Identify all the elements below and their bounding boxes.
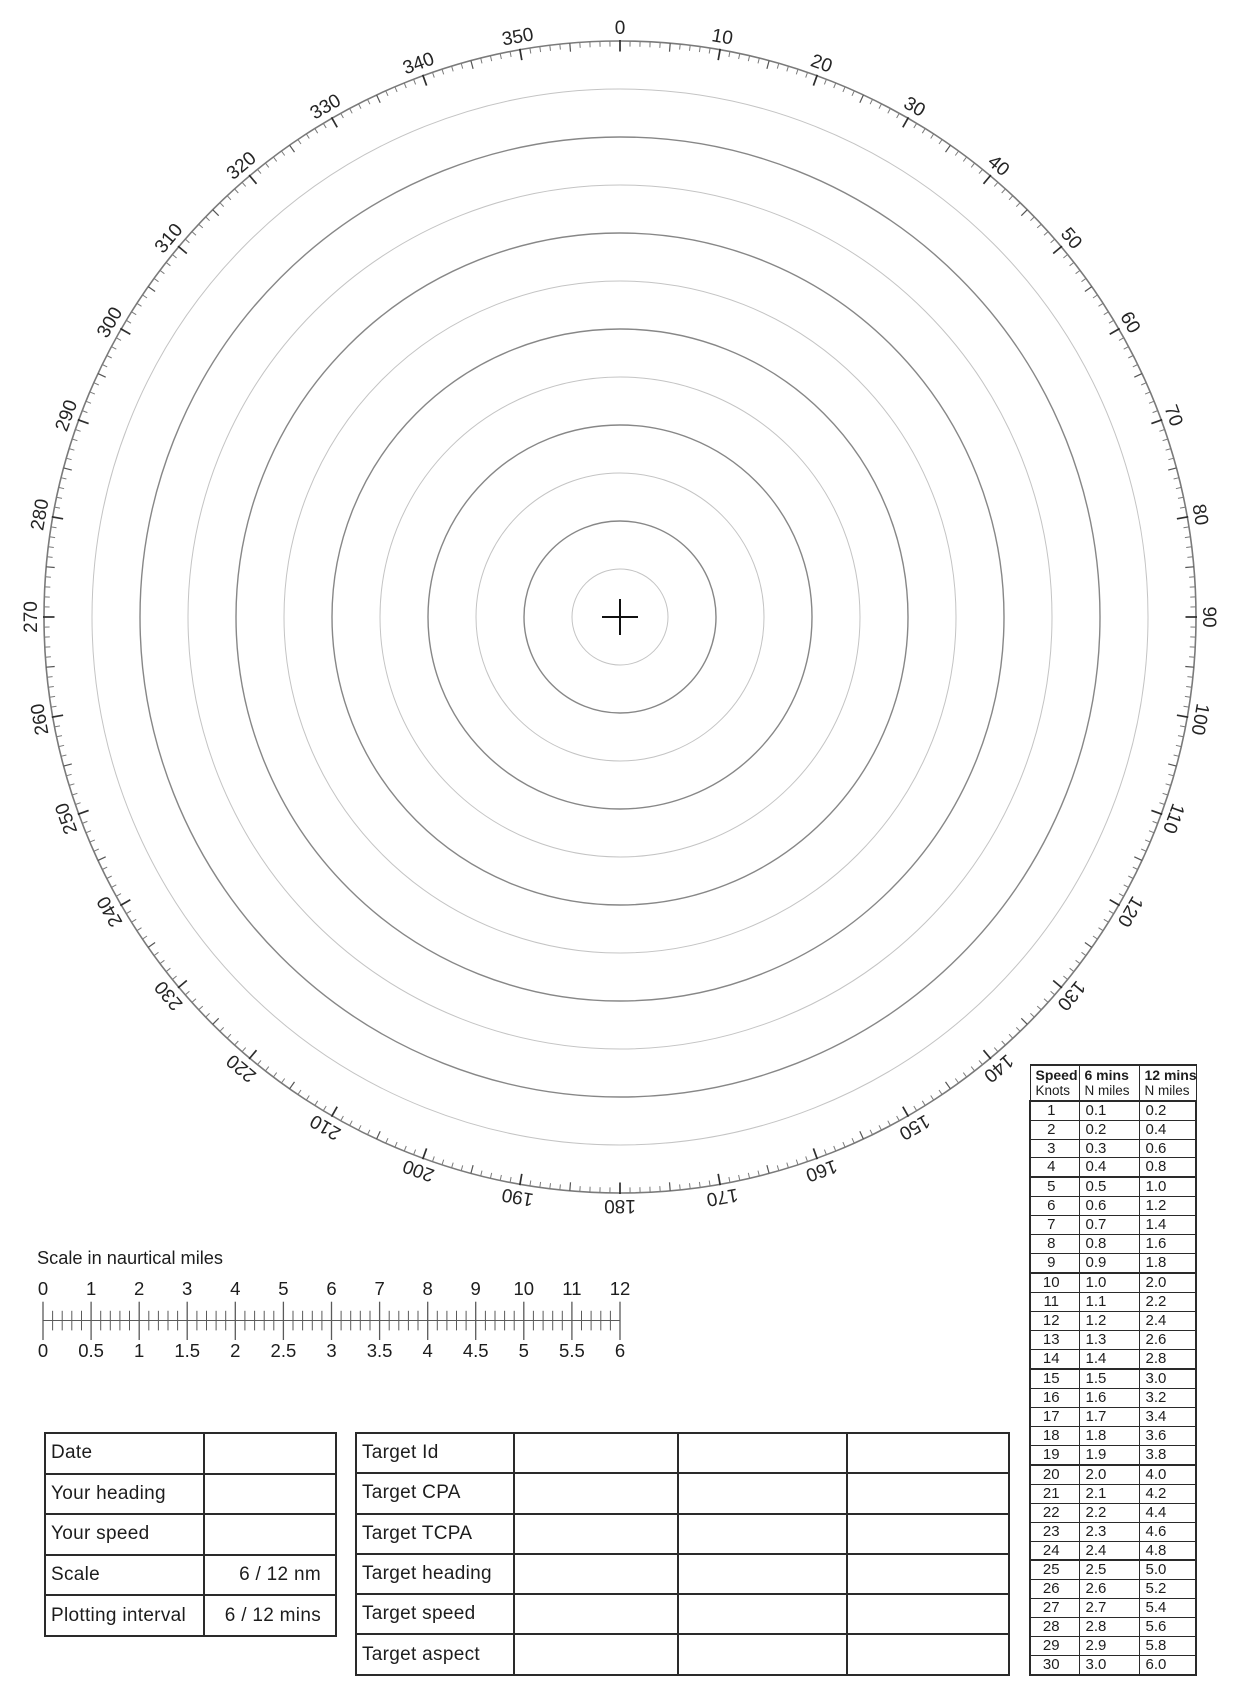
svg-text:50: 50	[1056, 224, 1086, 254]
svg-text:280: 280	[27, 497, 53, 532]
svg-text:2: 2	[230, 1340, 240, 1361]
svg-text:10: 10	[514, 1278, 535, 1299]
svg-text:90: 90	[1198, 606, 1219, 627]
svg-text:100: 100	[1187, 702, 1213, 737]
svg-text:6: 6	[615, 1340, 625, 1361]
svg-text:350: 350	[500, 24, 535, 50]
svg-text:1: 1	[134, 1340, 144, 1361]
svg-text:230: 230	[151, 976, 187, 1014]
svg-text:190: 190	[500, 1184, 535, 1210]
svg-text:1: 1	[86, 1278, 96, 1299]
svg-text:140: 140	[979, 1050, 1017, 1086]
svg-text:60: 60	[1115, 308, 1144, 337]
svg-text:2: 2	[134, 1278, 144, 1299]
svg-text:0: 0	[38, 1340, 48, 1361]
svg-text:8: 8	[423, 1278, 433, 1299]
svg-text:340: 340	[400, 49, 437, 80]
svg-text:130: 130	[1053, 976, 1089, 1014]
svg-text:210: 210	[307, 1110, 345, 1144]
svg-text:3: 3	[326, 1340, 336, 1361]
svg-text:300: 300	[93, 304, 127, 342]
svg-text:270: 270	[21, 601, 42, 633]
svg-text:180: 180	[604, 1195, 636, 1216]
svg-text:2.5: 2.5	[271, 1340, 297, 1361]
svg-text:40: 40	[983, 151, 1013, 181]
svg-text:0: 0	[615, 18, 626, 39]
svg-text:160: 160	[803, 1155, 840, 1186]
svg-text:5: 5	[278, 1278, 288, 1299]
svg-text:330: 330	[307, 90, 345, 124]
svg-text:320: 320	[223, 148, 261, 184]
svg-text:5: 5	[519, 1340, 529, 1361]
svg-text:10: 10	[710, 25, 734, 49]
svg-text:200: 200	[400, 1155, 437, 1186]
svg-text:110: 110	[1158, 800, 1188, 836]
svg-text:3.5: 3.5	[367, 1340, 393, 1361]
svg-text:6: 6	[326, 1278, 336, 1299]
svg-text:30: 30	[900, 93, 929, 122]
svg-text:5.5: 5.5	[559, 1340, 585, 1361]
svg-text:260: 260	[27, 702, 53, 737]
svg-text:9: 9	[471, 1278, 481, 1299]
svg-text:4: 4	[230, 1278, 240, 1299]
svg-text:0.5: 0.5	[78, 1340, 104, 1361]
svg-text:250: 250	[52, 800, 83, 837]
svg-text:240: 240	[93, 892, 127, 930]
svg-text:80: 80	[1187, 503, 1211, 527]
svg-text:310: 310	[151, 220, 187, 258]
svg-text:11: 11	[562, 1278, 581, 1299]
svg-text:290: 290	[52, 397, 83, 434]
svg-text:150: 150	[895, 1110, 933, 1144]
svg-text:4: 4	[423, 1340, 433, 1361]
svg-text:170: 170	[705, 1184, 740, 1210]
svg-text:Scale in naurtical miles: Scale in naurtical miles	[37, 1248, 223, 1268]
svg-text:7: 7	[374, 1278, 384, 1299]
svg-text:1.5: 1.5	[174, 1340, 200, 1361]
svg-text:120: 120	[1113, 892, 1147, 930]
svg-text:220: 220	[223, 1050, 261, 1086]
svg-text:4.5: 4.5	[463, 1340, 489, 1361]
svg-text:0: 0	[38, 1278, 48, 1299]
svg-text:12: 12	[610, 1278, 631, 1299]
svg-text:3: 3	[182, 1278, 192, 1299]
